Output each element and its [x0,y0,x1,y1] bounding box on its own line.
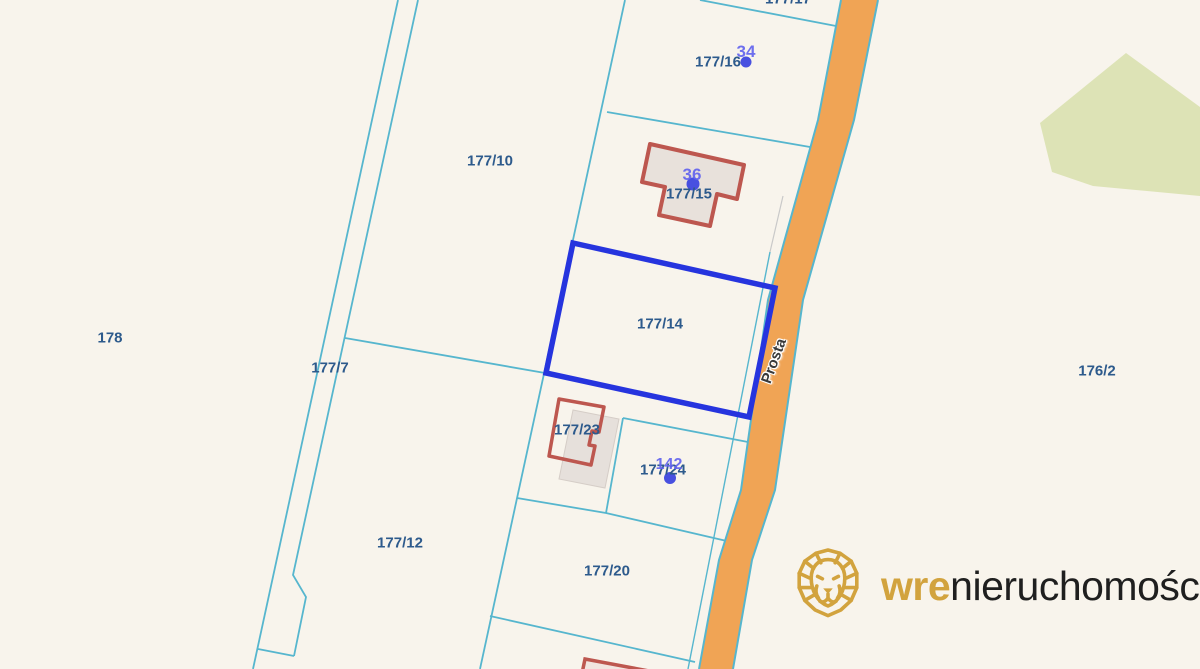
address-marker-36: 36 [683,165,702,185]
parcel-label-177-16: 177/16 [695,54,741,71]
parcel-label-176-2: 176/2 [1078,363,1116,380]
watermark-logo: wrenieruchomości [788,544,1200,628]
lion-icon [788,544,868,628]
parcel-label-177-15: 177/15 [666,186,712,203]
parcel-label-178: 178 [97,330,122,347]
parcel-label-177-10: 177/10 [467,153,513,170]
brand-prefix: wre [881,563,950,609]
parcel-label-177-20: 177/20 [584,563,630,580]
parcel-label-177-7: 177/7 [311,360,349,377]
parcel-label-177-12: 177/12 [377,535,423,552]
address-marker-142: 142 [656,456,683,474]
address-marker-34: 34 [737,42,756,62]
brand-suffix: nieruchomości [950,563,1200,609]
parcel-label-177-14: 177/14 [637,316,683,333]
parcel-label-177-23: 177/23 [554,422,600,439]
parcel-label-177-17: 177/17 [765,0,811,8]
brand-wordmark: wrenieruchomości [881,566,1200,607]
